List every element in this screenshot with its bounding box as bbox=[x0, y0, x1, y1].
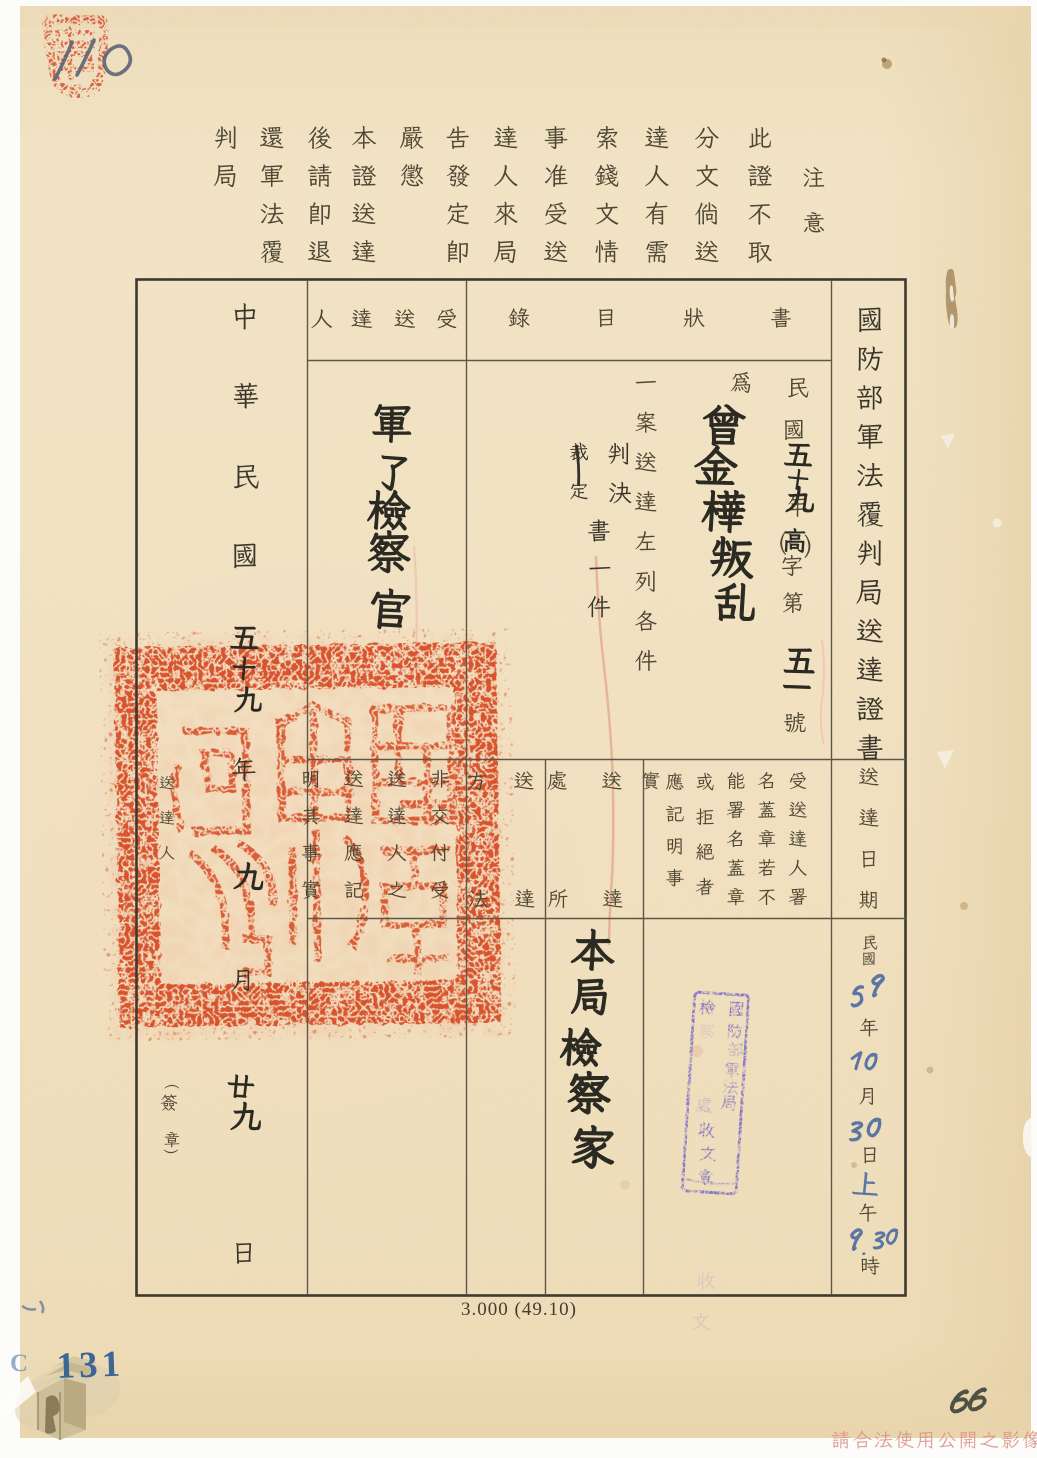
svg-text:131: 131 bbox=[56, 1344, 125, 1387]
svg-text:C: C bbox=[10, 1350, 28, 1377]
svg-text:3.000 (49.10): 3.000 (49.10) bbox=[461, 1299, 577, 1320]
